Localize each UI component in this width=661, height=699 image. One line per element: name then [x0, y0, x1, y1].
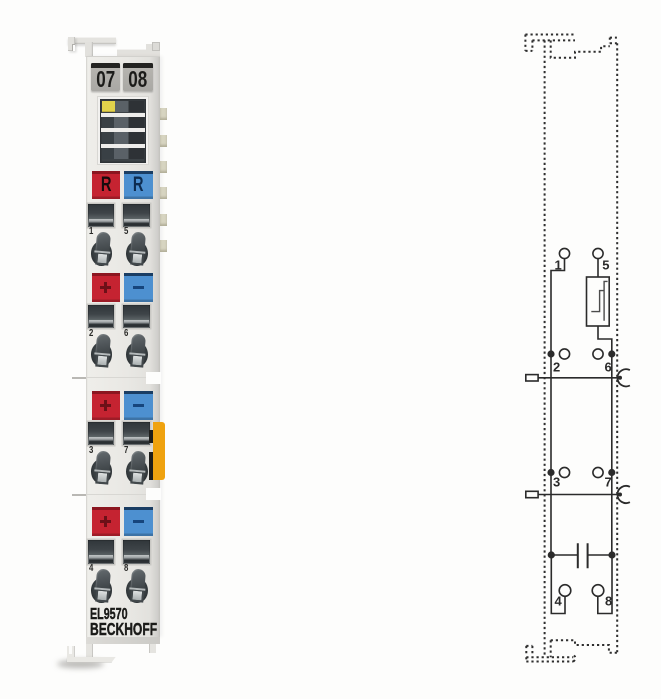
svg-text:1: 1: [555, 258, 562, 273]
svg-text:8: 8: [605, 594, 612, 609]
svg-text:4: 4: [555, 594, 563, 609]
svg-text:3: 3: [553, 475, 560, 490]
svg-text:5: 5: [602, 258, 609, 273]
svg-text:2: 2: [553, 360, 560, 375]
svg-text:6: 6: [605, 360, 612, 375]
svg-text:7: 7: [605, 475, 612, 490]
